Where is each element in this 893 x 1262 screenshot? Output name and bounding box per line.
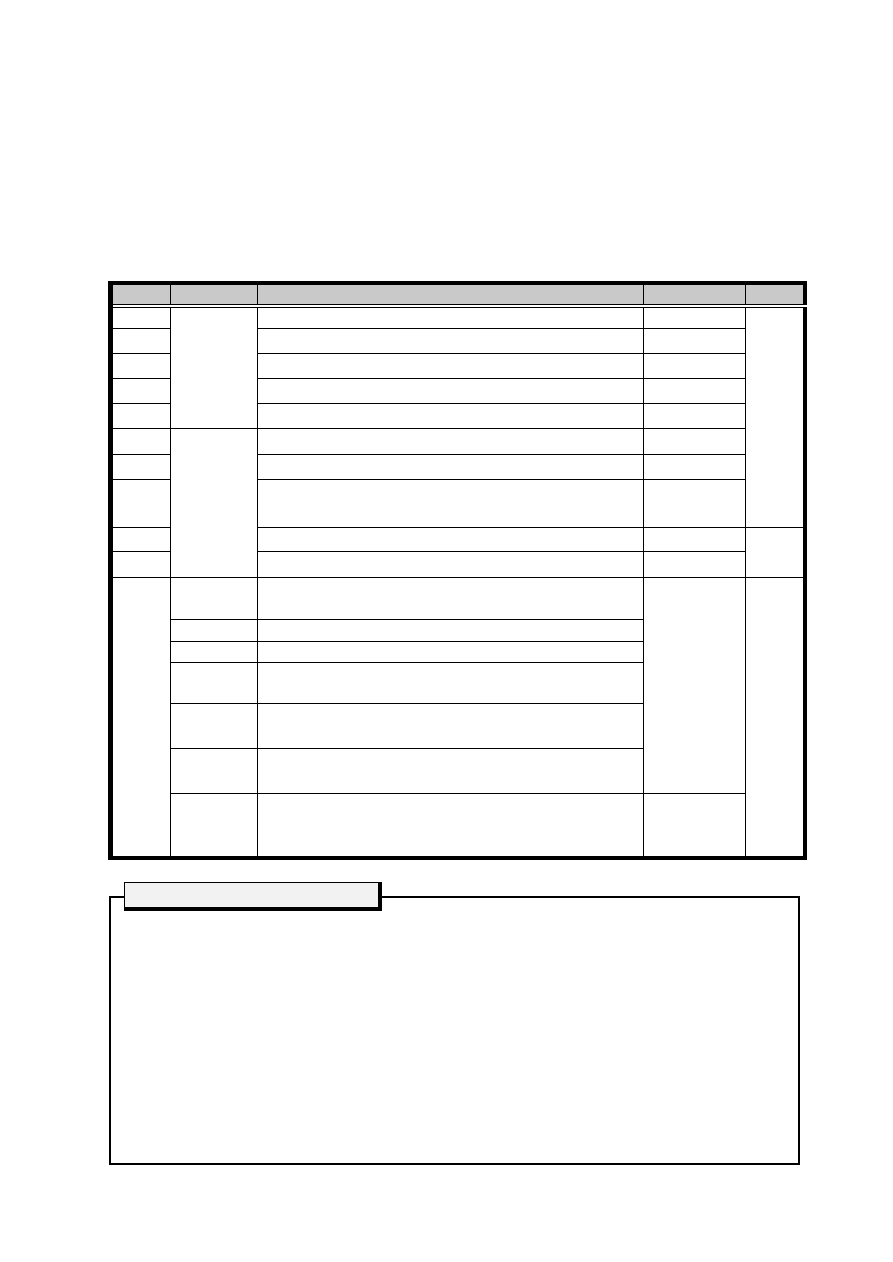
table-cell xyxy=(111,527,171,551)
note-box xyxy=(109,896,800,1165)
table-cell xyxy=(258,454,644,479)
table-cell xyxy=(644,328,746,353)
header-cell-3 xyxy=(258,283,644,306)
note-title-tab xyxy=(124,882,382,911)
table-cell xyxy=(111,454,171,479)
table-row xyxy=(111,577,805,619)
table-cell-merged xyxy=(746,527,805,577)
table-cell-merged xyxy=(644,577,746,793)
table-cell xyxy=(171,577,258,619)
table-cell xyxy=(171,748,258,793)
table-cell xyxy=(644,378,746,403)
table-cell xyxy=(111,479,171,527)
table-cell-merged xyxy=(171,428,258,577)
table-cell-merged xyxy=(746,306,805,527)
document-table xyxy=(108,281,807,860)
table-cell xyxy=(258,641,644,662)
table-cell xyxy=(258,403,644,428)
table-cell xyxy=(111,428,171,454)
header-cell-5 xyxy=(746,283,805,306)
table-cell xyxy=(258,748,644,793)
note-body-text xyxy=(121,918,788,1153)
table-cell xyxy=(258,527,644,551)
table-row xyxy=(111,306,805,328)
table-cell xyxy=(258,428,644,454)
table-cell xyxy=(258,328,644,353)
header-cell-4 xyxy=(644,283,746,306)
header-cell-2 xyxy=(171,283,258,306)
header-cell-1 xyxy=(111,283,171,306)
table-cell xyxy=(258,703,644,748)
table-cell xyxy=(258,378,644,403)
table-cell xyxy=(258,619,644,641)
table-cell-merged xyxy=(171,306,258,428)
table-cell xyxy=(644,551,746,577)
table-cell-merged xyxy=(746,577,805,858)
table-cell xyxy=(111,378,171,403)
table-cell xyxy=(171,619,258,641)
table-row xyxy=(111,793,805,858)
table-cell xyxy=(171,703,258,748)
table-cell xyxy=(258,551,644,577)
table-cell xyxy=(111,403,171,428)
table-row xyxy=(111,428,805,454)
table-cell xyxy=(111,353,171,378)
table-cell xyxy=(644,479,746,527)
table-cell xyxy=(258,353,644,378)
table-cell xyxy=(644,306,746,328)
table-cell-merged xyxy=(111,577,171,858)
table-cell xyxy=(171,662,258,703)
table-cell xyxy=(258,306,644,328)
table-cell xyxy=(258,662,644,703)
table-cell xyxy=(111,328,171,353)
table-cell xyxy=(258,793,644,858)
table-cell xyxy=(111,306,171,328)
table-cell xyxy=(111,551,171,577)
table-cell xyxy=(171,641,258,662)
table-cell xyxy=(644,353,746,378)
table-cell xyxy=(644,403,746,428)
table-cell xyxy=(171,793,258,858)
table-cell xyxy=(258,577,644,619)
table-cell xyxy=(644,793,746,858)
document-page xyxy=(0,0,893,1262)
table-cell xyxy=(258,479,644,527)
table-cell xyxy=(644,428,746,454)
table-header-row xyxy=(111,283,805,306)
table-cell xyxy=(644,527,746,551)
table-cell xyxy=(644,454,746,479)
